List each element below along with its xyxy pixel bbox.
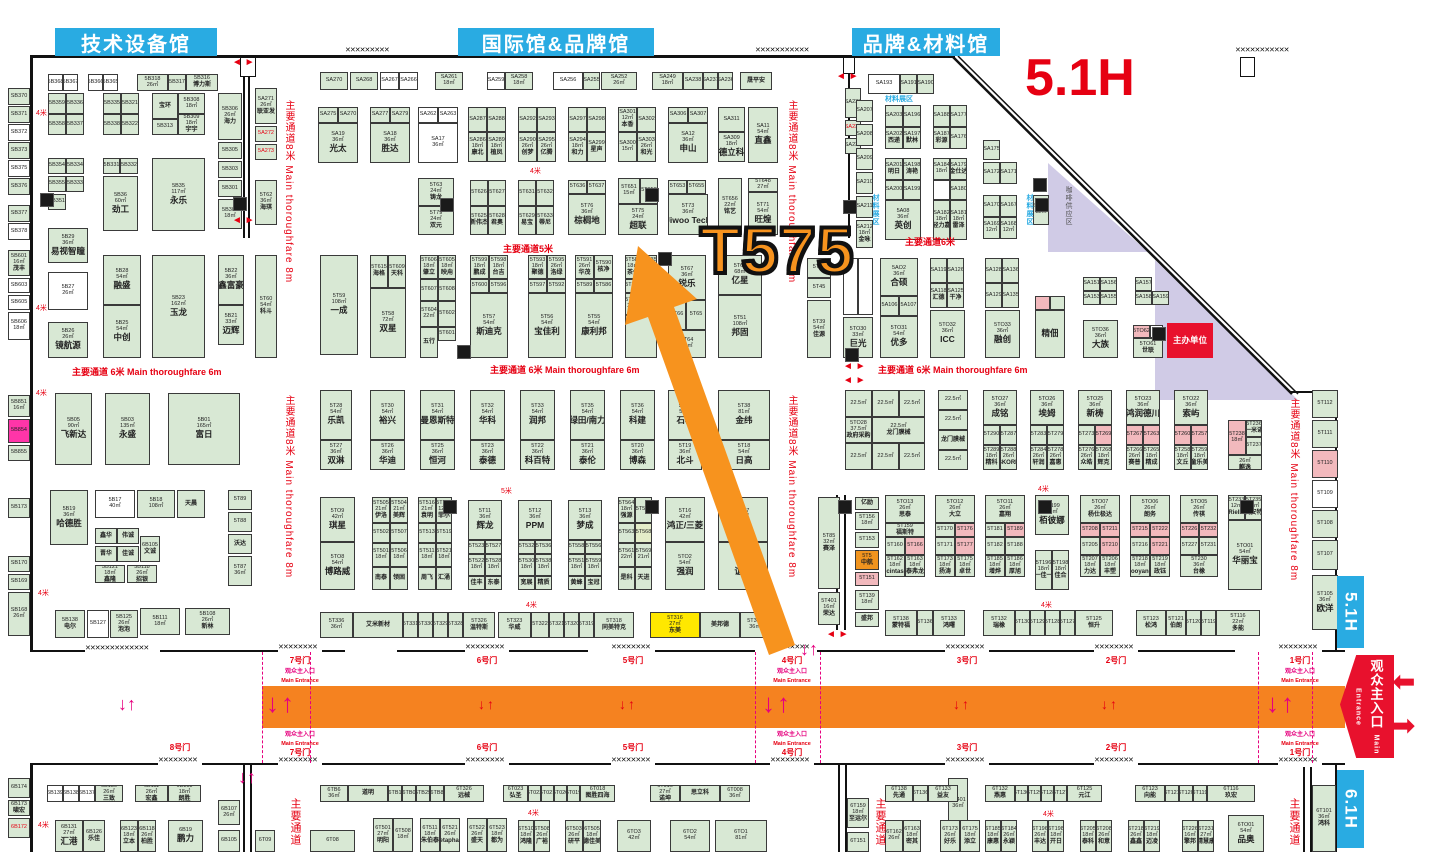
booth-5B367: 5B367 bbox=[63, 74, 78, 91]
booth-SA135: SA135 bbox=[1002, 283, 1019, 308]
booth-5T615: 5T615海格 bbox=[370, 255, 388, 288]
booth-5T28: 5T2854㎡乐凯 bbox=[320, 390, 352, 440]
booth-5T501: 5T50118㎡ bbox=[372, 543, 390, 567]
booth-6B138: 6B138 bbox=[63, 785, 79, 802]
booth-SA200: SA200 bbox=[885, 180, 903, 200]
booth-SA19: SA1936㎡光太 bbox=[318, 123, 358, 163]
booth-SA263: SA263 bbox=[438, 107, 458, 123]
booth-SA237: SA237 bbox=[703, 72, 718, 90]
thoroughfare-arrows-icon: ◄ ► bbox=[826, 630, 849, 640]
booth-5TO01: 5TO0154㎡华丽宝 bbox=[1228, 520, 1262, 590]
booth-5TO36: 5TO3636㎡大族 bbox=[1083, 320, 1118, 358]
booth-5B301: 5B301 bbox=[218, 180, 242, 197]
booth-SA179: SA179金仕达 bbox=[950, 158, 967, 180]
booth-SA311: SA311 bbox=[718, 107, 745, 132]
booth-6T151: 6T151 bbox=[847, 832, 869, 852]
booth: 领固 bbox=[390, 567, 408, 590]
booth-SA252: SA25226㎡ bbox=[601, 72, 637, 90]
booth-5T581: 5T58122㎡ bbox=[625, 293, 641, 315]
booth-5T176: 5T176 bbox=[955, 523, 975, 537]
booth-5T321: 5T321 bbox=[549, 612, 564, 638]
booth-6T008: 6T00836㎡ bbox=[720, 785, 750, 802]
booth-SA193: SA193 bbox=[868, 74, 900, 94]
booth-SA259: SA259 bbox=[487, 72, 505, 90]
pillar-icon bbox=[658, 252, 672, 266]
corridor-label: 主要通道 bbox=[1286, 798, 1302, 846]
booth-5T276: 5T27626㎡众皓 bbox=[1078, 445, 1095, 470]
booth-SA236: SA236 bbox=[718, 72, 733, 90]
booth-5B365: 5B365 bbox=[103, 74, 118, 91]
booth-5T153: 5T153 bbox=[855, 532, 879, 548]
hall-banner-brand-material: 品牌&材料馆 bbox=[852, 28, 1000, 56]
booth-5B29: 5B2936㎡易视智瞳 bbox=[48, 228, 88, 263]
booth-SB371: SB371 bbox=[8, 106, 30, 123]
booth-5TO27: 5TO2736㎡成铭 bbox=[983, 390, 1017, 425]
booth-5B108: 5B10826㎡新林 bbox=[185, 608, 230, 635]
booth-SB603: SB603 bbox=[8, 278, 30, 293]
booth-5T160: 5T160 bbox=[885, 537, 905, 555]
booth-SA153: SA153 bbox=[1083, 291, 1100, 305]
corridor-label: 4米 bbox=[38, 588, 49, 598]
booth-5A273: 5A273 bbox=[255, 144, 277, 160]
booth: 周飞 bbox=[418, 567, 436, 590]
booth-5B303: 5B303 bbox=[218, 161, 242, 178]
booth-6B107: 6B10726㎡ bbox=[218, 800, 240, 825]
booth-5T156: 5T15618㎡ bbox=[855, 512, 879, 530]
booth-SA172: SA172 bbox=[983, 162, 1000, 184]
booth-5T284: 5T28426㎡轩润 bbox=[1030, 445, 1047, 470]
corridor-label: 4米 bbox=[1041, 600, 1052, 610]
booth-5B601: 5B60116㎡茂丰 bbox=[8, 250, 30, 276]
booth-5T58: 5T5872㎡双星 bbox=[370, 288, 406, 358]
booth-5T236: 5T236一米诺 bbox=[1246, 420, 1262, 437]
booth-6T523: 6T52318㎡都为 bbox=[487, 818, 507, 852]
booth-5T401: 5T40116㎡荣达 bbox=[818, 592, 840, 625]
booth-5B118: 5B11826㎡招银 bbox=[127, 565, 157, 583]
thoroughfare-arrows-icon: ◄ ► bbox=[843, 376, 866, 386]
booth-SA297: SA297 bbox=[568, 107, 587, 132]
booth-SA197: SA197默林 bbox=[903, 127, 921, 149]
booth-6T505: 6T50518㎡德佳美 bbox=[583, 820, 601, 852]
booth-6T018: 6T018图胜四海 bbox=[580, 785, 615, 802]
booth-5T75: 5T7524㎡超联 bbox=[618, 204, 658, 235]
booth-5B26: 5B2626㎡镜航源 bbox=[48, 322, 88, 358]
booth-SA298: SA298 bbox=[587, 107, 606, 132]
booth-5T528: 5T52818㎡ bbox=[485, 554, 502, 576]
corridor-label: 主要通道8米 Main thoroughfare 8m bbox=[1286, 398, 1301, 581]
booth-5T222: 5T222 bbox=[1150, 523, 1170, 537]
booth-5T151: 5T151 bbox=[855, 572, 879, 586]
booth-5T268: 5T26818㎡辉克 bbox=[1095, 445, 1112, 470]
booth-5T62: 5T6236㎡海琪 bbox=[255, 180, 277, 225]
booth-5B606: 5B60618㎡ bbox=[8, 312, 30, 340]
booth-5T22: 5T2236㎡科百特 bbox=[520, 440, 555, 470]
booth-SA268: SA268 bbox=[350, 72, 378, 90]
booth-5T597: 5T597 bbox=[528, 279, 547, 293]
booth-5A271: 5A27126㎡联亚发 bbox=[255, 88, 277, 124]
booth-5B333: 5B333 bbox=[66, 176, 84, 192]
booth-5T569: 5T56921㎡ bbox=[635, 543, 652, 567]
booth-5T206: 5T20618㎡丰塑 bbox=[1100, 555, 1120, 577]
corridor-label: 主要通道6米 bbox=[905, 235, 955, 248]
booth-6T101: 6T10136㎡鸿科 bbox=[1312, 785, 1336, 852]
gate-label-top: 6号门 bbox=[477, 655, 497, 666]
booth-6B126: 6B126乐佳 bbox=[83, 820, 105, 852]
booth-5TO22: 5TO2236㎡索屿 bbox=[1174, 390, 1208, 425]
booth-5T609: 5T609天科 bbox=[388, 255, 406, 288]
booth-SA201: SA201明日 bbox=[885, 158, 903, 180]
booth bbox=[1035, 296, 1050, 310]
booth-5T207: 5T20718㎡力达 bbox=[1080, 555, 1100, 577]
booth-5B322: 5B322 bbox=[121, 114, 139, 135]
booth-6T163: 6T16318㎡密其 bbox=[903, 820, 921, 852]
booth-6T133: 6T133益友 bbox=[928, 785, 958, 802]
door-icon bbox=[1240, 57, 1255, 77]
booth-SA181: SA18118㎡雷泽 bbox=[950, 200, 967, 240]
booth: 亿励 bbox=[855, 497, 879, 510]
booth-5T121: 5T121伯朗 bbox=[1166, 610, 1186, 636]
booth-5AO2: 5AO236㎡合硕 bbox=[880, 258, 918, 296]
gate-dashed-line bbox=[1258, 652, 1259, 763]
booth-5TO9: 5TO942㎡琪星 bbox=[320, 497, 355, 542]
wall bbox=[838, 765, 840, 852]
booth-5T237: 5T237 bbox=[1246, 437, 1262, 455]
booth-5TO06: 5TO0626㎡朗务 bbox=[1130, 495, 1170, 523]
booth-5T159: 5T159福斯特 bbox=[885, 523, 925, 537]
booth: 22.5㎡ bbox=[872, 390, 899, 417]
turnstile-icon: ✕✕✕✕✕✕✕✕ bbox=[945, 756, 989, 764]
booth-SA277: SA277 bbox=[370, 107, 390, 123]
booth-SA17: SA1736㎡ bbox=[418, 123, 458, 163]
booth: 美邦德 bbox=[700, 612, 740, 638]
booth-5T51: 5T51108㎡邦固 bbox=[718, 295, 762, 358]
booth-5TO23: 5TO2336㎡鸿润德川 bbox=[1126, 390, 1160, 425]
booth-6T198: 6T19818㎡开日 bbox=[1048, 820, 1064, 852]
booth-5B28: 5B2854㎡融盛 bbox=[103, 255, 141, 305]
booth-5T599: 5T59918㎡鹏成 bbox=[470, 255, 489, 279]
booth-5B111: 5B11118㎡ bbox=[140, 608, 180, 635]
booth-6TB0: 6TB0 bbox=[402, 785, 416, 802]
booth-6T326: 6T326远械 bbox=[444, 785, 484, 802]
booth-5TO31: 5TO3154㎡优多 bbox=[880, 316, 918, 358]
corridor-label: 主要通道8米 Main thoroughfare 8m bbox=[281, 395, 296, 578]
booth-5T186: 5T18618㎡厚旭 bbox=[1005, 555, 1025, 577]
booth-5T38: 5T3881㎡金纬 bbox=[718, 390, 770, 440]
turnstile-icon: ✕✕✕✕✕✕✕✕ bbox=[465, 643, 509, 651]
booth-5B308: 5B30818㎡ bbox=[178, 93, 205, 114]
booth-SA208: SA208 bbox=[856, 124, 873, 146]
booth-5T563: 5T563 bbox=[618, 523, 635, 543]
booth-5T602: 5T602 bbox=[438, 301, 456, 327]
booth-6TB6: 6TB636㎡ bbox=[320, 785, 348, 802]
booth: 盛邦 bbox=[855, 612, 879, 627]
booth: 天晨 bbox=[177, 490, 205, 518]
booth-5T651: 5T65115㎡ bbox=[618, 178, 640, 204]
hall-banner-tech: 技术设备馆 bbox=[55, 28, 217, 56]
booth-5T205: 5T205 bbox=[1080, 537, 1100, 555]
booth-5T109: 5T109 bbox=[1312, 480, 1338, 508]
booth-5TO8: 5TO854㎡博路威 bbox=[320, 542, 355, 590]
booth-5T215: 5T215 bbox=[1130, 523, 1150, 537]
booth-6T226: 6T22616㎡擎邦 bbox=[1182, 820, 1198, 852]
booth-5T128: 5T128 bbox=[1045, 610, 1060, 636]
booth-5T655: 5T655 bbox=[687, 180, 706, 194]
booth-SA249: SA24918㎡ bbox=[652, 72, 683, 90]
booth-5B317: 5B317 bbox=[168, 74, 186, 91]
corridor-label: 4米 bbox=[1038, 484, 1049, 494]
booth-6TO01: 6TO0154㎡品奥 bbox=[1228, 815, 1264, 852]
booth-5TO2: 5TO254㎡强润 bbox=[665, 542, 705, 590]
booth-5T211: 5T211 bbox=[1100, 523, 1120, 537]
booth-6TB1: 6TB1 bbox=[388, 785, 402, 802]
booth-5T601: 5T601 bbox=[438, 327, 456, 341]
booth-5T530: 5T53018㎡ bbox=[518, 554, 535, 576]
booth-5T66: 5T66 bbox=[668, 300, 686, 330]
booth-SA198: SA198涛艳 bbox=[903, 158, 921, 180]
booth-SA209: SA209 bbox=[856, 148, 873, 170]
turnstile-icon: ✕✕✕✕✕✕✕✕ bbox=[278, 643, 322, 651]
booth-5TO05: 5TO0526㎡传祺 bbox=[1180, 495, 1218, 523]
entrance-arrows-icon: ↓↑ bbox=[238, 768, 256, 786]
booth-5T596: 5T596 bbox=[489, 279, 508, 293]
booth-6B172: 6B172 bbox=[8, 818, 30, 838]
booth-5T26: 5T2636㎡华迪 bbox=[370, 440, 405, 470]
booth-5T171: 5T171 bbox=[935, 537, 955, 555]
booth-5T189: 5T189 bbox=[1005, 523, 1025, 537]
booth-5T116: 5T11622㎡多能 bbox=[1216, 610, 1260, 636]
booth: 22.5㎡ bbox=[938, 450, 968, 470]
booth: 鑫华 bbox=[95, 528, 117, 544]
wall bbox=[844, 495, 846, 630]
hall-tag-6-1h: 6.1H bbox=[1337, 770, 1364, 848]
booth-5T27: 5T2736㎡双淋 bbox=[320, 440, 352, 470]
booth-5T580: 5T580 bbox=[641, 293, 657, 315]
corridor-label: 主要通道 bbox=[872, 798, 888, 846]
booth-5T502: 5T502 bbox=[372, 523, 390, 543]
booth-5T60: 5T6054㎡科斗 bbox=[255, 255, 277, 358]
booth-SB375: SB375 bbox=[8, 160, 30, 177]
booth-SA136: SA136 bbox=[1002, 258, 1019, 283]
booth-5T76: 5T7636㎡棕榈地 bbox=[568, 194, 606, 235]
booth-SA128: SA128 bbox=[985, 258, 1002, 283]
corridor-label: 4米 bbox=[36, 388, 47, 398]
booth-5T598: 5T59818㎡台吉 bbox=[489, 255, 508, 279]
corridor-label: 4米 bbox=[530, 166, 541, 176]
booth-5T331: 5T331 bbox=[403, 612, 418, 638]
booth-6T120: 6T120 bbox=[1179, 785, 1193, 802]
booth-5T326: 5T326温特斯 bbox=[463, 612, 495, 638]
pillar-icon bbox=[1240, 500, 1254, 514]
booth-5T519: 5T519 bbox=[436, 523, 452, 543]
booth-SA190: SA190 bbox=[917, 74, 934, 94]
booth bbox=[933, 180, 950, 200]
booth-SA294: SA29418㎡和力 bbox=[568, 132, 587, 162]
corridor-label: 主要通道8米 Main thoroughfare 8m bbox=[281, 100, 296, 283]
booth-5B313: 5B313 bbox=[152, 119, 178, 135]
booth-SA295: SA29526㎡亿腾 bbox=[537, 132, 556, 162]
booth-5B21: 5B2133㎡迈辉 bbox=[218, 305, 244, 345]
booth-SA279: SA279 bbox=[390, 107, 410, 123]
booth-SA188: SA188 bbox=[933, 105, 950, 127]
booth-SB169: SB169 bbox=[8, 574, 30, 590]
booth-5T238: 5T23818㎡ bbox=[1228, 420, 1246, 455]
booth-SA303: SA30326㎡和光 bbox=[637, 132, 656, 162]
booth-5T258: 5T25818㎡文丘 bbox=[1174, 445, 1191, 470]
booth-5TO61: 5TO61世联 bbox=[1133, 338, 1163, 358]
booth-5T21: 5T2136㎡泰伦 bbox=[570, 440, 605, 470]
booth-5T255: 5T25526㎡麒逸 bbox=[1228, 455, 1262, 470]
booth: 22.5㎡ bbox=[899, 390, 925, 417]
booth-SA11: SA1154㎡直鑫 bbox=[748, 107, 778, 163]
booth-5T627: 5T627 bbox=[488, 180, 506, 206]
booth-5T551: 5T55118㎡ bbox=[568, 554, 585, 576]
wall bbox=[1303, 765, 1305, 852]
booth-5T265: 5T26518㎡精成 bbox=[1143, 445, 1160, 470]
turnstile-icon: ✕✕✕✕✕✕✕✕✕✕✕✕✕ bbox=[85, 644, 160, 652]
booth-5T320: 5T320 bbox=[564, 612, 579, 638]
booth-SA171: SA171 bbox=[1000, 162, 1017, 184]
corridor-label: 主要通道8米 Main thoroughfare 8m bbox=[784, 395, 799, 578]
booth-5T527: 5T527 bbox=[485, 540, 502, 554]
booth-5T625: 5T625新伟杰 bbox=[470, 206, 488, 235]
booth-5T64: 5T6426㎡ bbox=[668, 330, 706, 358]
booth-SA299: SA299星声 bbox=[587, 132, 606, 162]
booth-5T316: 5T31627㎡东美 bbox=[650, 612, 700, 638]
corridor-label: 4米 bbox=[528, 808, 539, 818]
booth-SB377: SB377 bbox=[8, 205, 30, 222]
booth-5T230: 5T23036㎡台橡 bbox=[1180, 555, 1218, 577]
booth-5T556: 5T556 bbox=[585, 540, 602, 554]
booth: 宝冠 bbox=[585, 576, 602, 590]
booth-6T121: 6T121 bbox=[1165, 785, 1179, 802]
booth-5T328: 5T328 bbox=[448, 612, 463, 638]
pillar-icon bbox=[457, 345, 471, 359]
booth-SA167: SA167 bbox=[1000, 195, 1017, 217]
booth-5T329: 5T329 bbox=[433, 612, 448, 638]
booth-5T587: 5T58718㎡茶仕 bbox=[625, 255, 641, 279]
booth-6T208: 6T20826㎡和意 bbox=[1096, 820, 1112, 852]
booth-6B131: 6B13127㎡汇港 bbox=[55, 820, 83, 852]
wall bbox=[30, 763, 1345, 765]
booth-6T130: 6T130 bbox=[1015, 785, 1028, 802]
booth-6T09: 6T09 bbox=[255, 830, 275, 852]
booth-SA301: SA30112㎡本香 bbox=[618, 107, 637, 132]
booth-5T287: 5T287 bbox=[1000, 425, 1017, 445]
booth-SA180: SA180 bbox=[950, 180, 967, 200]
thoroughfare-arrows-icon: ◄ ► bbox=[232, 58, 255, 68]
booth-5T177: 5T177 bbox=[955, 537, 975, 555]
booth-5T227: 5T227 bbox=[1180, 537, 1199, 555]
booth-5TO12: 5TO1226㎡大立 bbox=[935, 495, 975, 523]
booth-5B854: 5B854 bbox=[8, 419, 30, 443]
gate-label-top: 7号门观众主入口Main Entrance bbox=[281, 655, 319, 684]
booth-5T504: 5T50421㎡美辉 bbox=[390, 497, 408, 523]
booth bbox=[858, 258, 873, 315]
booth-6T231: 6T23127㎡精慧康 bbox=[1198, 820, 1214, 852]
booth-6T521: 6T52126㎡Metaphase bbox=[440, 818, 460, 852]
booth-5T538: 5T53818㎡ bbox=[535, 554, 552, 576]
booth-5T319: 5T319 bbox=[579, 612, 594, 638]
main-entrance-cn: 观众主入口 bbox=[1369, 659, 1384, 729]
booth: 晟平安 bbox=[740, 72, 772, 90]
booth-5T59: 5T59108㎡一成 bbox=[320, 255, 358, 355]
booth-5A272: 5A272 bbox=[255, 126, 277, 142]
booth-5T564: 5T56418㎡强源 bbox=[618, 497, 635, 523]
gate-dashed-line bbox=[755, 652, 756, 763]
booth-5T608: 5T608 bbox=[438, 279, 456, 301]
booth-6T021: 6T021 bbox=[541, 785, 554, 802]
booth-SA262: SA262 bbox=[418, 107, 438, 123]
booth-SA156: SA156 bbox=[1100, 277, 1117, 291]
booth-5T507: 5T507 bbox=[390, 523, 408, 543]
booth-5B23: 5B23162㎡玉龙 bbox=[152, 255, 205, 358]
booth-6T508: 6T50826㎡广裕 bbox=[534, 820, 550, 852]
booth-5T632: 5T632 bbox=[536, 180, 554, 206]
booth-5T513: 5T513 bbox=[418, 523, 436, 543]
booth-SA12: SA1236㎡申山 bbox=[668, 123, 708, 163]
booth-5T628: 5T628君奥 bbox=[488, 206, 506, 235]
booth-SA177: SA177 bbox=[950, 105, 967, 127]
turnstile-icon: ✕✕✕✕✕✕✕✕✕✕✕ bbox=[755, 46, 817, 54]
booth-6T023: 6T023弘圣 bbox=[503, 785, 528, 802]
booth-5B36: 5B3660㎡劲工 bbox=[103, 176, 138, 231]
booth-5B05: 5B0590㎡飞新达 bbox=[55, 393, 92, 465]
booth: 伟诚 bbox=[117, 528, 139, 544]
booth-5T259: 5T25918㎡童乐美 bbox=[1191, 445, 1208, 470]
booth-5T591: 5T59126㎡华茂 bbox=[575, 255, 594, 279]
booth-5T269: 5T269 bbox=[1095, 425, 1112, 445]
booth-5T308: 5T30836㎡ bbox=[740, 612, 770, 638]
pillar-icon bbox=[1033, 178, 1047, 192]
booth-5B358: 5B358 bbox=[48, 114, 66, 135]
booth-5T19: 5T1936㎡北斗 bbox=[668, 440, 702, 470]
gate-label-top: 3号门 bbox=[957, 655, 977, 666]
booth: 22.5㎡龙门膜械 bbox=[872, 417, 925, 443]
booth-5T590: 5T590核净 bbox=[594, 255, 613, 279]
booth-5T130: 5T130 bbox=[1015, 610, 1030, 636]
booth-6T128: 6T128 bbox=[1041, 785, 1054, 802]
booth: 22.5㎡ bbox=[872, 443, 899, 470]
booth-6T173: 6T17326㎡好乐 bbox=[940, 820, 960, 852]
booth-5T592: 5T592 bbox=[547, 279, 566, 293]
booth-5B336: 5B336 bbox=[66, 93, 84, 114]
booth: 五行 bbox=[420, 327, 438, 358]
hall-number-5-1h: 5.1H bbox=[1025, 48, 1135, 108]
booth: 天进 bbox=[635, 567, 652, 590]
booth-SA175: SA175 bbox=[983, 140, 1000, 160]
booth-5T16: 5T1642㎡鸿正/三菱 bbox=[665, 497, 705, 542]
booth-5T39: 5T3954㎡佳源 bbox=[807, 300, 831, 358]
booth: 精佃 bbox=[1035, 310, 1065, 358]
carpet-arrows-icon: ↓↑ bbox=[1101, 697, 1119, 711]
booth-5T5: 5T5中航 bbox=[855, 550, 879, 570]
corridor-label: 主要通道 6米 Main thoroughfare 6m bbox=[878, 363, 1028, 376]
booth-6B19: 6B19鹏力 bbox=[168, 820, 203, 852]
booth-5T323: 5T323华威 bbox=[498, 612, 531, 638]
booth-6T508: 6T50818㎡ bbox=[393, 818, 413, 852]
booth-5T606: 5T60618㎡肇立 bbox=[420, 255, 438, 279]
booth-5B355: 5B355 bbox=[48, 176, 66, 192]
booth-5T336: 5T33636㎡ bbox=[320, 612, 353, 638]
booth-SA129: SA129 bbox=[985, 283, 1002, 308]
booth-5T583: 5T583 bbox=[641, 279, 657, 293]
booth: 道明 bbox=[348, 785, 388, 802]
gate-label-bottom: 8号门 bbox=[170, 742, 190, 753]
booth-5T559: 5T55918㎡ bbox=[585, 554, 602, 576]
booth-SA157: SA157 bbox=[1135, 277, 1152, 291]
booth-5TO32: 5TO3236㎡ICC bbox=[930, 310, 965, 358]
booth-SA289: SA28918㎡植凤 bbox=[487, 132, 506, 162]
